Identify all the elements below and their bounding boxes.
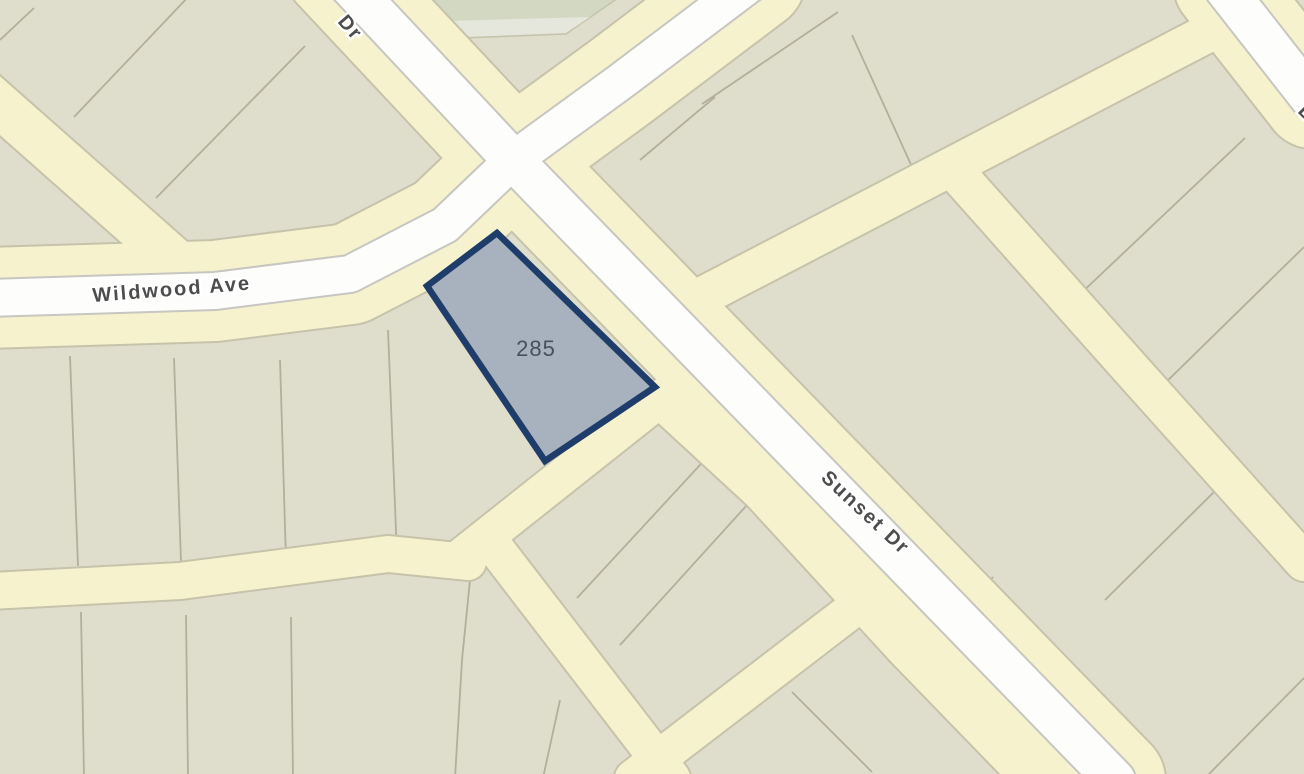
map-canvas[interactable]: 285 Wildwood Ave Sunset Dr Dr B [0, 0, 1304, 774]
parcel-285-label: 285 [516, 336, 556, 361]
